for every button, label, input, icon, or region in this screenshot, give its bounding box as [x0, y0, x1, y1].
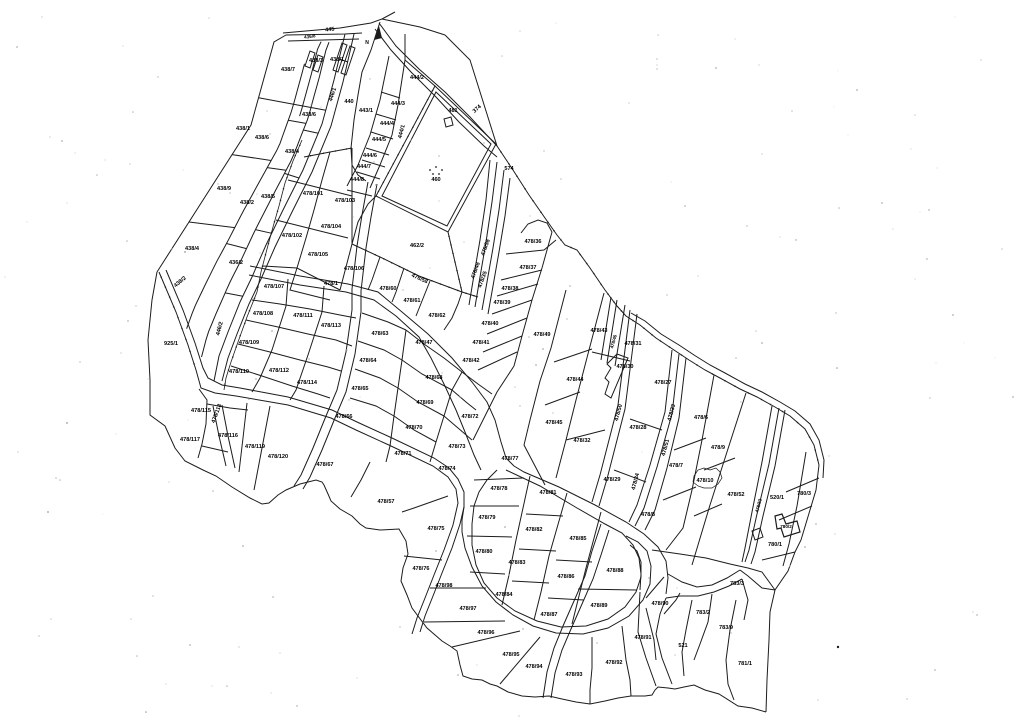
svg-text:438/3: 438/3 — [309, 58, 323, 64]
svg-text:478/71: 478/71 — [394, 451, 411, 457]
svg-text:780/2: 780/2 — [780, 524, 792, 529]
svg-text:478/67: 478/67 — [316, 462, 333, 468]
svg-text:478/120: 478/120 — [268, 454, 288, 460]
svg-text:478/108: 478/108 — [253, 311, 273, 317]
svg-text:478/106: 478/106 — [344, 266, 364, 272]
svg-text:478/40: 478/40 — [481, 321, 498, 327]
svg-text:478/27: 478/27 — [654, 380, 671, 386]
svg-text:478/68: 478/68 — [425, 375, 442, 381]
svg-text:478/66: 478/66 — [335, 414, 352, 420]
svg-text:478/85: 478/85 — [569, 536, 586, 542]
svg-text:N: N — [365, 40, 369, 46]
svg-text:478/112: 478/112 — [269, 368, 289, 374]
svg-text:478/98: 478/98 — [435, 583, 452, 589]
svg-text:478/77: 478/77 — [501, 456, 518, 462]
svg-text:478/47: 478/47 — [415, 340, 432, 346]
svg-text:444/7: 444/7 — [357, 164, 371, 170]
svg-text:438/4: 438/4 — [185, 246, 200, 252]
svg-text:478/60: 478/60 — [379, 286, 396, 292]
svg-text:478/69: 478/69 — [416, 400, 433, 406]
svg-text:478/84: 478/84 — [495, 592, 513, 598]
svg-text:478/36: 478/36 — [524, 239, 541, 245]
svg-text:478/90: 478/90 — [651, 601, 668, 607]
svg-text:478/115: 478/115 — [191, 408, 211, 414]
svg-text:478/9: 478/9 — [711, 445, 725, 451]
svg-text:478/109: 478/109 — [239, 340, 259, 346]
svg-text:783/9: 783/9 — [719, 625, 733, 631]
svg-text:478/102: 478/102 — [282, 233, 302, 239]
svg-text:460: 460 — [431, 177, 440, 183]
svg-text:444/4: 444/4 — [380, 121, 395, 127]
svg-text:478/75: 478/75 — [427, 526, 444, 532]
svg-text:478/93: 478/93 — [565, 672, 582, 678]
svg-text:478/31: 478/31 — [624, 341, 641, 347]
svg-text:780/3: 780/3 — [797, 491, 811, 497]
svg-text:783/3: 783/3 — [730, 581, 744, 587]
svg-text:478/88: 478/88 — [606, 568, 623, 574]
svg-text:478/86: 478/86 — [557, 574, 574, 580]
svg-text:445: 445 — [325, 27, 335, 34]
svg-text:438/5: 438/5 — [261, 194, 275, 200]
svg-text:478/95: 478/95 — [502, 652, 519, 658]
svg-text:438/7: 438/7 — [281, 67, 295, 73]
svg-text:478/7: 478/7 — [669, 463, 683, 469]
svg-text:478/89: 478/89 — [590, 603, 607, 609]
svg-text:478/28: 478/28 — [629, 425, 646, 431]
svg-text:438/6: 438/6 — [255, 135, 269, 141]
svg-text:478/63: 478/63 — [371, 331, 388, 337]
svg-text:436/2: 436/2 — [229, 260, 243, 266]
svg-text:478/83: 478/83 — [508, 560, 525, 566]
svg-text:478/116: 478/116 — [218, 433, 238, 439]
svg-text:478/91: 478/91 — [634, 635, 651, 641]
svg-text:925/1: 925/1 — [164, 341, 178, 347]
svg-text:438/4: 438/4 — [285, 149, 300, 155]
svg-text:478/81: 478/81 — [539, 490, 556, 496]
svg-text:478/74: 478/74 — [438, 466, 456, 472]
svg-text:478/49: 478/49 — [533, 332, 550, 338]
svg-text:478/41: 478/41 — [472, 340, 489, 346]
svg-text:478/44: 478/44 — [566, 377, 584, 383]
svg-text:478/70: 478/70 — [405, 425, 422, 431]
svg-text:478/29: 478/29 — [603, 477, 620, 483]
svg-text:438/6: 438/6 — [302, 112, 316, 118]
svg-text:478/92: 478/92 — [605, 660, 622, 666]
svg-text:443/1: 443/1 — [359, 108, 373, 114]
svg-text:444/5: 444/5 — [372, 137, 386, 143]
svg-text:462/2: 462/2 — [410, 243, 424, 249]
svg-text:478/43: 478/43 — [590, 328, 607, 334]
svg-text:780/1: 780/1 — [768, 542, 782, 548]
svg-text:478/119: 478/119 — [245, 444, 265, 450]
svg-text:478/107: 478/107 — [264, 284, 284, 290]
svg-text:478/38: 478/38 — [501, 286, 518, 292]
svg-text:444/2: 444/2 — [410, 75, 424, 81]
svg-text:478/105: 478/105 — [308, 252, 328, 258]
svg-text:478/39: 478/39 — [493, 300, 510, 306]
svg-text:478/117: 478/117 — [180, 437, 200, 443]
svg-text:478/61: 478/61 — [403, 298, 420, 304]
svg-text:478/82: 478/82 — [525, 527, 542, 533]
svg-text:478/65: 478/65 — [351, 386, 368, 392]
svg-text:478/110: 478/110 — [229, 369, 249, 375]
svg-text:478/62: 478/62 — [428, 313, 445, 319]
svg-text:521: 521 — [678, 643, 687, 649]
svg-text:478/42: 478/42 — [462, 358, 479, 364]
svg-text:478/113: 478/113 — [321, 323, 341, 329]
svg-text:478/103: 478/103 — [335, 198, 355, 204]
svg-text:478/8: 478/8 — [641, 512, 655, 518]
svg-text:440: 440 — [344, 99, 353, 105]
svg-text:478/64: 478/64 — [359, 358, 377, 364]
svg-text:781/1: 781/1 — [738, 661, 752, 667]
svg-text:478/37: 478/37 — [519, 265, 536, 271]
svg-text:478/10: 478/10 — [696, 478, 713, 484]
svg-text:478/72: 478/72 — [461, 414, 478, 420]
svg-text:438/9: 438/9 — [217, 186, 231, 192]
svg-text:444/3: 444/3 — [391, 101, 405, 107]
svg-text:478/101: 478/101 — [303, 191, 323, 197]
svg-text:478/57: 478/57 — [377, 499, 394, 505]
svg-text:478/32: 478/32 — [573, 438, 590, 444]
svg-text:520/1: 520/1 — [770, 495, 784, 501]
svg-text:478/52: 478/52 — [727, 492, 744, 498]
svg-text:478/76: 478/76 — [412, 566, 429, 572]
svg-text:478/80: 478/80 — [475, 549, 492, 555]
svg-text:478/79: 478/79 — [478, 515, 495, 521]
svg-text:438/2: 438/2 — [240, 200, 254, 206]
svg-text:438/1: 438/1 — [236, 126, 250, 132]
svg-text:478/94: 478/94 — [525, 664, 543, 670]
svg-text:478/114: 478/114 — [297, 380, 318, 386]
svg-text:478/104: 478/104 — [321, 224, 342, 230]
svg-text:783/2: 783/2 — [696, 610, 710, 616]
svg-text:444/6: 444/6 — [363, 153, 377, 159]
svg-text:478/73: 478/73 — [448, 444, 465, 450]
svg-text:478/45: 478/45 — [545, 420, 562, 426]
svg-text:478/111: 478/111 — [293, 313, 313, 319]
svg-text:478/87: 478/87 — [540, 612, 557, 618]
svg-text:444/8: 444/8 — [350, 177, 364, 183]
svg-text:574: 574 — [504, 166, 514, 172]
svg-text:478/6: 478/6 — [694, 415, 708, 421]
svg-text:478/97: 478/97 — [459, 606, 476, 612]
svg-text:481: 481 — [448, 108, 457, 114]
svg-text:438/1: 438/1 — [330, 57, 344, 63]
svg-text:478/78: 478/78 — [490, 486, 507, 492]
svg-text:478/96: 478/96 — [477, 630, 494, 636]
svg-text:478/30: 478/30 — [616, 364, 633, 370]
svg-text:478/1: 478/1 — [324, 281, 338, 287]
